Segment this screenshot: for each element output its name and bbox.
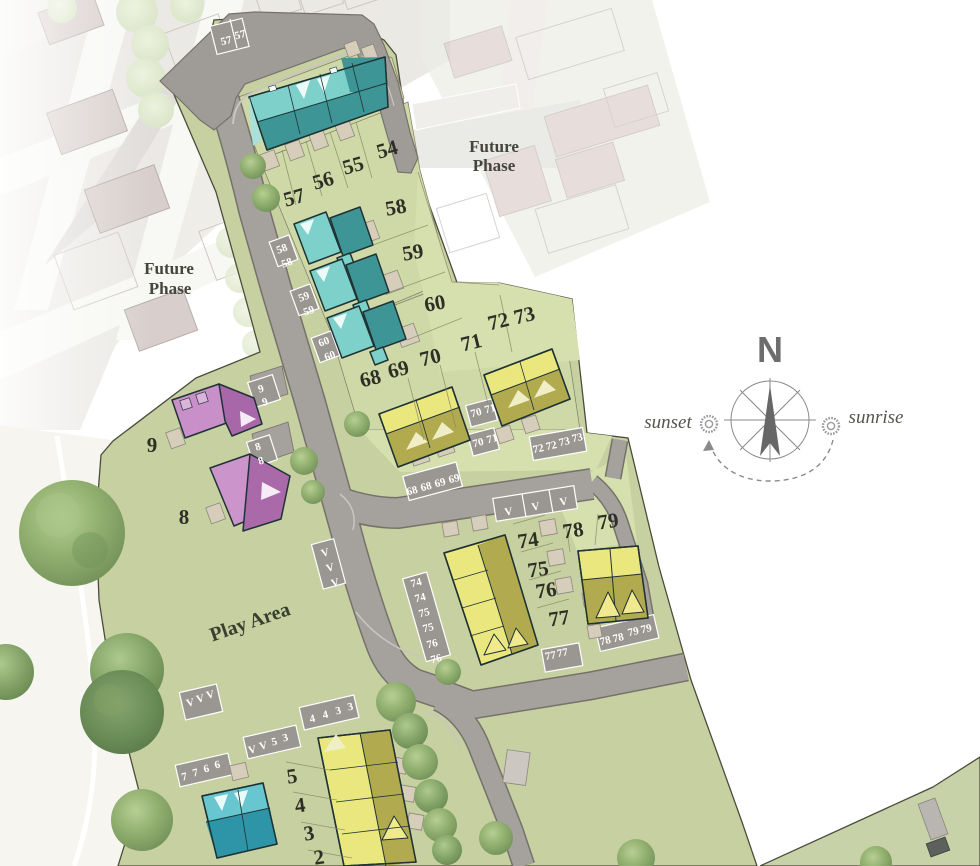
svg-text:78: 78 <box>561 517 585 544</box>
svg-text:59: 59 <box>400 238 425 265</box>
svg-text:79: 79 <box>596 508 620 535</box>
svg-text:N: N <box>757 329 783 370</box>
svg-text:74: 74 <box>516 527 541 554</box>
svg-text:Future: Future <box>144 259 194 278</box>
svg-text:sunrise: sunrise <box>849 407 904 428</box>
svg-text:Phase: Phase <box>149 279 192 298</box>
svg-text:sunset: sunset <box>644 412 692 433</box>
svg-text:Phase: Phase <box>473 156 516 175</box>
svg-text:Future: Future <box>469 137 519 156</box>
svg-text:76: 76 <box>534 577 558 604</box>
svg-text:8: 8 <box>179 505 190 529</box>
svg-text:77: 77 <box>547 605 571 632</box>
svg-text:58: 58 <box>383 193 408 220</box>
svg-text:9: 9 <box>147 433 158 457</box>
svg-text:60: 60 <box>422 289 447 316</box>
